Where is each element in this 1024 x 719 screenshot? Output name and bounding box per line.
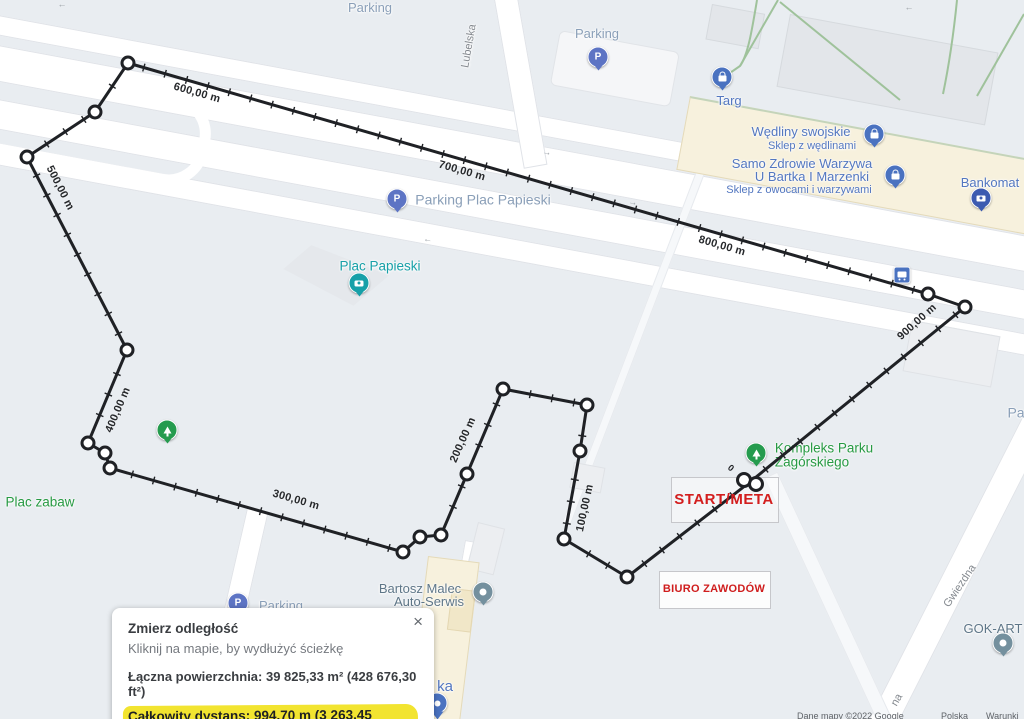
map-label: Bankomat <box>961 176 1020 190</box>
bus-glyph <box>898 271 907 277</box>
dialog-subtitle: Kliknij na mapie, by wydłużyć ścieżkę <box>128 641 418 656</box>
bag-glyph <box>870 132 878 138</box>
map-label: Plac zabaw <box>5 496 74 511</box>
measure-distance-dialog: × Zmierz odległość Kliknij na mapie, by … <box>112 608 434 719</box>
parking-lot <box>550 30 680 107</box>
map-label: Parking <box>575 27 619 41</box>
road-arrow-icon: ← <box>423 233 434 244</box>
map-label: U Bartka I Marzenki <box>755 170 869 184</box>
map-label: Parking Plac Papieski <box>415 192 550 207</box>
building <box>705 4 765 49</box>
distance-marker-label: 200,00 m <box>448 416 479 465</box>
road <box>764 472 901 719</box>
map-canvas[interactable]: ← ← → ← → ParkingParkingTargWędliny swoj… <box>0 0 1024 719</box>
biuro-zawodow-label: BIURO ZAWODÓW <box>659 571 769 607</box>
camera-glyph <box>355 280 364 286</box>
road-arrow-icon: → <box>628 196 639 207</box>
marker-glyph <box>434 700 440 706</box>
dialog-title: Zmierz odległość <box>128 621 418 636</box>
map-label: Pa <box>1007 405 1024 420</box>
route-start-zero-label: 0 <box>726 463 736 474</box>
parking-glyph: P <box>235 598 242 608</box>
bag-glyph <box>891 173 899 179</box>
bus-pin-icon[interactable] <box>894 267 911 284</box>
building <box>777 14 999 125</box>
tree-pin-icon[interactable] <box>746 443 767 464</box>
bag-glyph <box>718 75 726 81</box>
tree-glyph <box>752 446 760 457</box>
road-arrow-icon: ← <box>58 0 67 9</box>
atm-glyph <box>977 195 986 201</box>
parking-pin-icon[interactable]: P <box>588 47 609 68</box>
map-copyright: Dane mapy ©2022 Google <box>797 711 904 719</box>
parking-glyph: P <box>394 194 401 204</box>
generic-pin-icon[interactable] <box>473 582 494 603</box>
road-arrow-icon: ← <box>905 2 914 12</box>
generic-glyph <box>480 589 487 596</box>
distance-marker-label: 300,00 m <box>271 488 321 513</box>
map-label: Auto-Serwis <box>394 595 464 609</box>
map-country: Polska <box>941 711 968 719</box>
road-gwiezdna <box>856 372 1024 719</box>
parking-glyph: P <box>595 52 602 62</box>
map-label: Parking <box>348 1 392 15</box>
map-label: GOK-ART <box>964 622 1023 636</box>
map-label: Plac Papieski <box>339 260 420 275</box>
total-distance-line: Całkowity dystans: 994,70 m (3 263,45 st… <box>123 705 418 719</box>
highlighted-distance: Całkowity dystans: 994,70 m (3 263,45 st… <box>123 704 418 719</box>
distance-marker-label: 400,00 m <box>103 386 133 435</box>
map-label: Sklep z wędlinami <box>768 140 856 152</box>
total-area-line: Łączna powierzchnia: 39 825,33 m² (428 6… <box>128 669 418 699</box>
atm-pin-icon[interactable] <box>971 188 992 209</box>
bag-pin-icon[interactable] <box>864 124 885 145</box>
street-name-label: Lubelska <box>459 23 479 68</box>
map-label: Zagórskiego <box>775 456 849 471</box>
bag-pin-icon[interactable] <box>885 165 906 186</box>
start-meta-label: START/META <box>671 477 777 521</box>
plaza-shape <box>279 241 392 311</box>
close-icon[interactable]: × <box>413 613 423 630</box>
map-terms-link[interactable]: Warunki <box>986 711 1019 719</box>
parking-pin-icon[interactable]: P <box>387 189 408 210</box>
tree-pin-icon[interactable] <box>157 420 178 441</box>
map-label: Sklep z owocami i warzywami <box>726 184 871 196</box>
road-arrow-icon: → <box>542 146 553 157</box>
camera-pin-icon[interactable] <box>349 273 370 294</box>
tree-glyph <box>163 423 171 434</box>
map-label: Targ <box>716 94 741 108</box>
generic-pin-icon[interactable] <box>993 633 1014 654</box>
generic-glyph <box>1000 640 1007 647</box>
bag-pin-icon[interactable] <box>712 67 733 88</box>
map-label: Wędliny swojskie <box>752 125 851 139</box>
